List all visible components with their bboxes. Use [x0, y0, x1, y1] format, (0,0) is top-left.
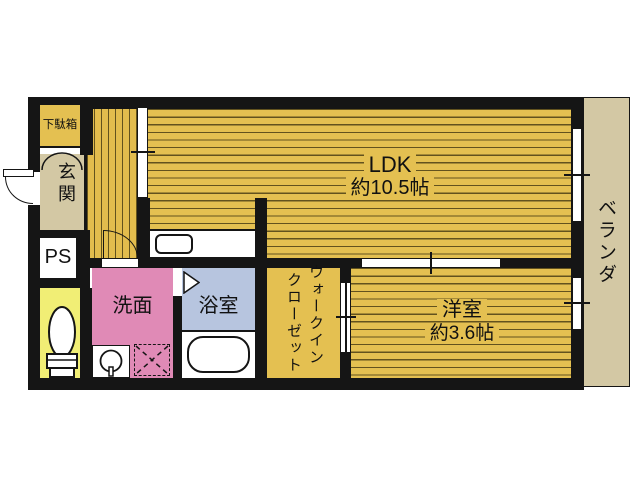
shoebox-label: 下駄箱 [38, 119, 82, 131]
bathroom-door-triangle-icon [183, 271, 200, 294]
bathroom-door-gap [173, 268, 182, 296]
washroom-label: 洗面 [92, 296, 173, 317]
washbasin-icon [96, 348, 126, 378]
hall-door-leaf [101, 258, 139, 268]
wall-bottom [28, 378, 584, 390]
entrance-label: 玄関 [53, 162, 79, 206]
entrance-step-edge [84, 155, 87, 236]
wic-label-line1: ウォークイン [305, 264, 326, 366]
wic-door-tick [336, 316, 356, 318]
kitchen-sink-icon [155, 234, 193, 254]
front-door-swing-arc-icon [5, 177, 33, 204]
ldk-label: LDK 約10.5帖 [300, 153, 480, 199]
toilet-icon [42, 302, 82, 378]
bathroom-label: 浴室 [182, 296, 255, 317]
front-door-leaf [3, 169, 34, 177]
hall-ldk-door-tick [131, 151, 155, 153]
hall-ldk-sliding-door [137, 107, 148, 198]
veranda-label: ベランダ [595, 198, 615, 286]
ldk-name: LDK [364, 152, 417, 177]
pipe-space-label: PS [38, 247, 78, 268]
wic-door-center-line [345, 283, 347, 352]
ldk-western-door-tick [430, 252, 432, 274]
washing-machine-x-icon [134, 344, 170, 376]
western-window-tick [564, 302, 590, 304]
western-room-label: 洋室 約3.6帖 [382, 300, 542, 344]
ldk-window-tick [564, 174, 590, 176]
western-window [572, 277, 582, 330]
western-room-size: 約3.6帖 [425, 323, 499, 344]
ldk-size: 約10.5帖 [346, 177, 435, 199]
western-room-name: 洋室 [437, 299, 487, 321]
wall-top [28, 97, 584, 109]
bathtub-icon [187, 336, 250, 373]
wic-label-line2: クローゼット [283, 272, 304, 374]
floor-plan: ベランダ [0, 0, 640, 480]
wall-wic-left [255, 198, 267, 378]
